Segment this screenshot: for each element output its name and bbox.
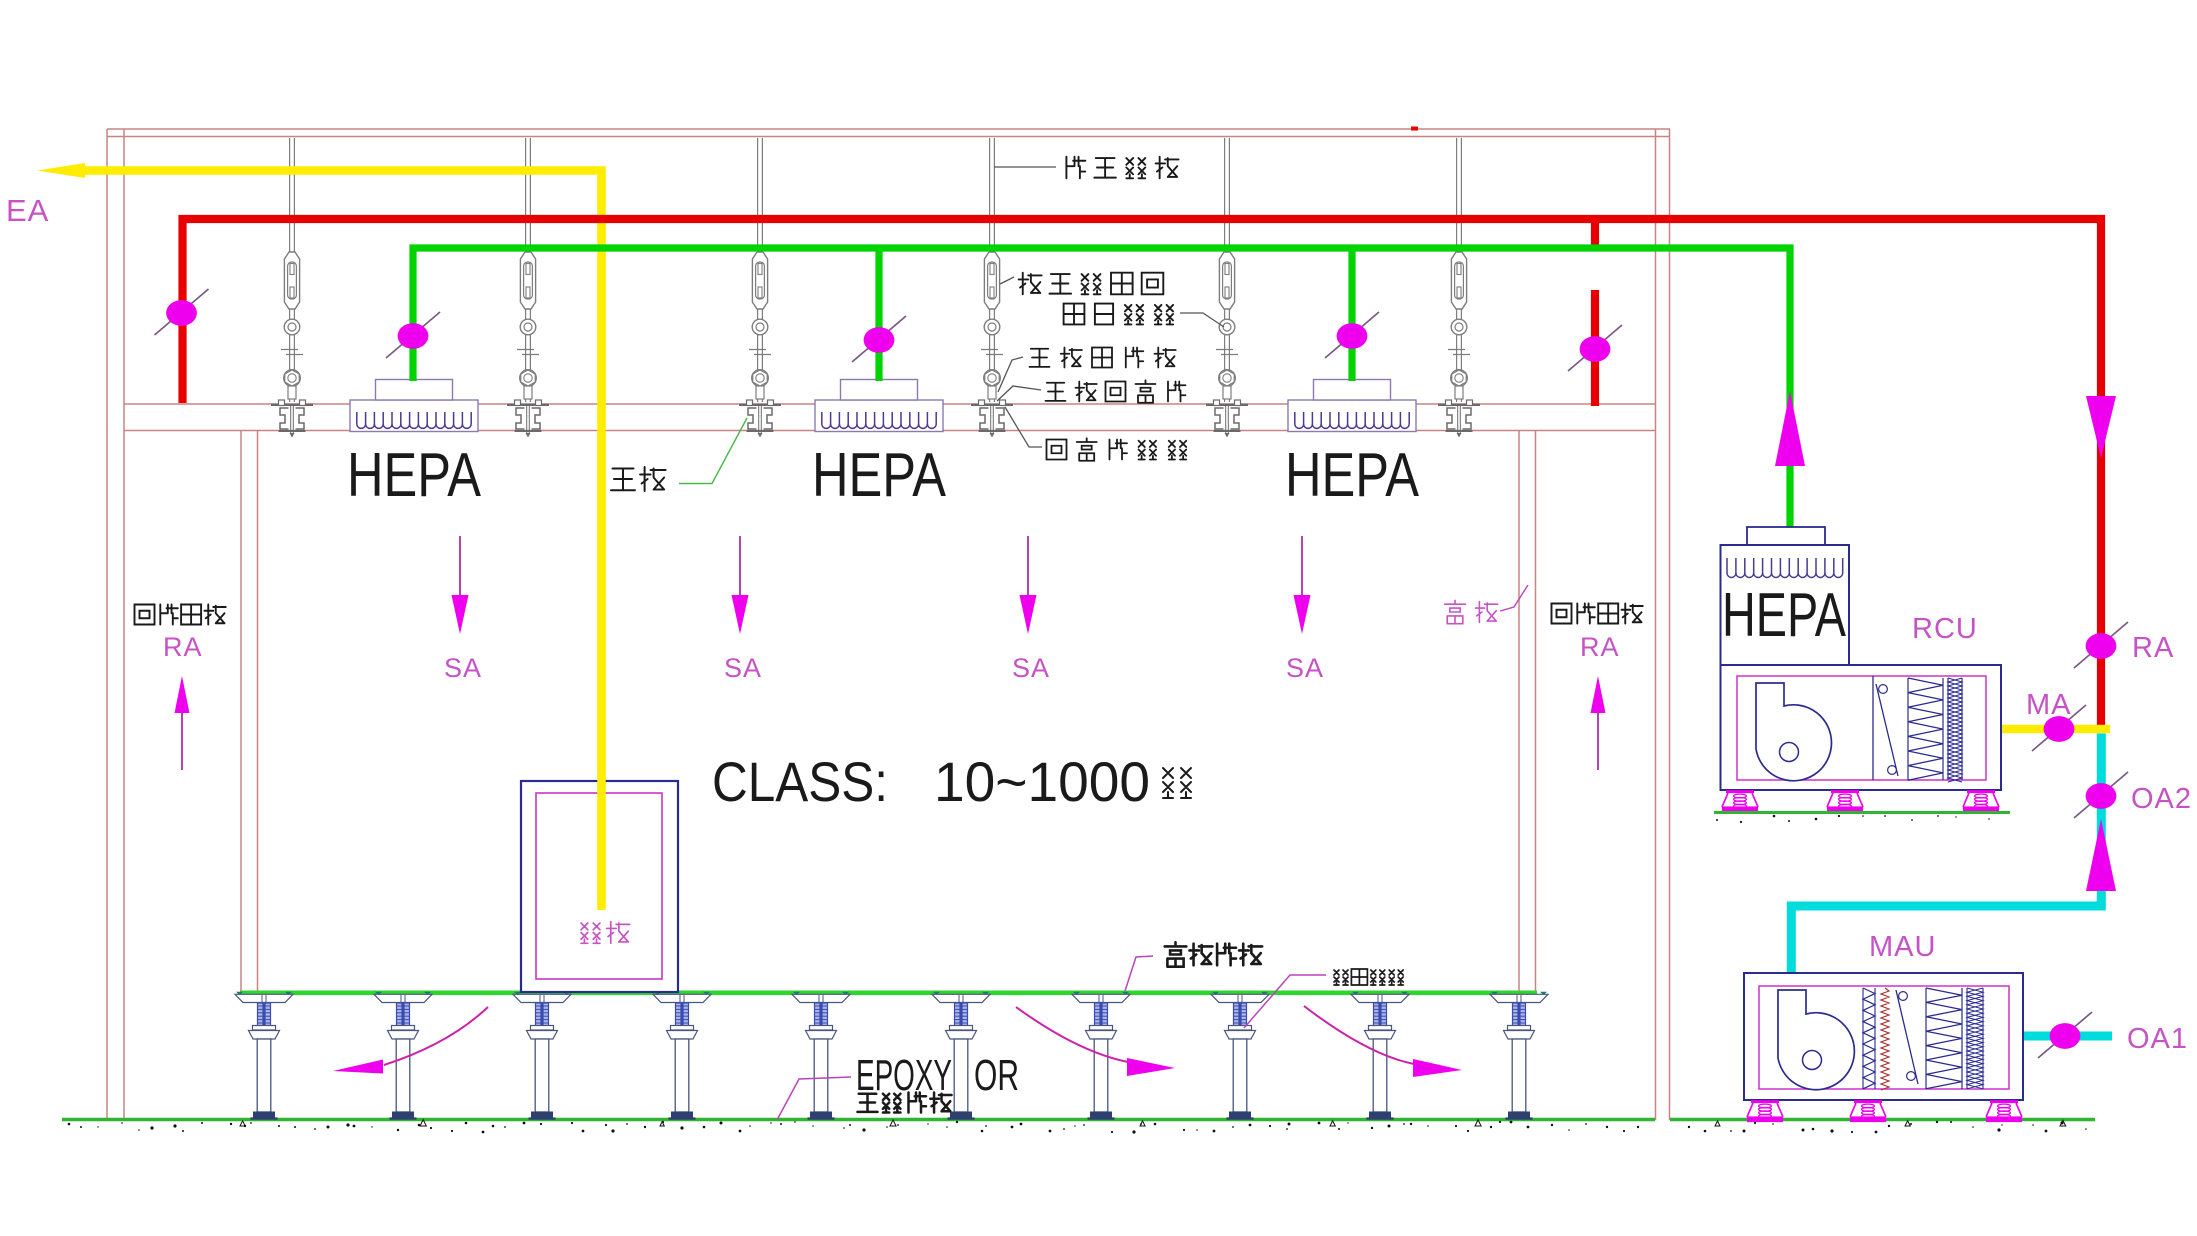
svg-text:RA: RA xyxy=(2132,632,2174,664)
svg-text:MA: MA xyxy=(2026,689,2072,721)
svg-text:RA: RA xyxy=(163,632,203,662)
svg-text:SA: SA xyxy=(1012,653,1050,683)
svg-text:SA: SA xyxy=(1286,653,1324,683)
svg-text:MAU: MAU xyxy=(1869,931,1936,963)
svg-text:RCU: RCU xyxy=(1912,613,1978,645)
svg-text:HEPA: HEPA xyxy=(812,441,947,510)
svg-text:OR: OR xyxy=(974,1051,1019,1100)
svg-text:OA2: OA2 xyxy=(2131,783,2192,815)
svg-text:SA: SA xyxy=(444,653,482,683)
svg-text:HEPA: HEPA xyxy=(1722,581,1846,650)
svg-text:RA: RA xyxy=(1580,632,1620,662)
svg-text:HEPA: HEPA xyxy=(347,441,482,510)
svg-text:10~1000: 10~1000 xyxy=(934,750,1150,813)
svg-text:SA: SA xyxy=(724,653,762,683)
svg-text:HEPA: HEPA xyxy=(1285,441,1420,510)
svg-text:OA1: OA1 xyxy=(2127,1023,2188,1055)
svg-text:EA: EA xyxy=(6,193,49,228)
svg-text:CLASS:: CLASS: xyxy=(712,750,888,813)
